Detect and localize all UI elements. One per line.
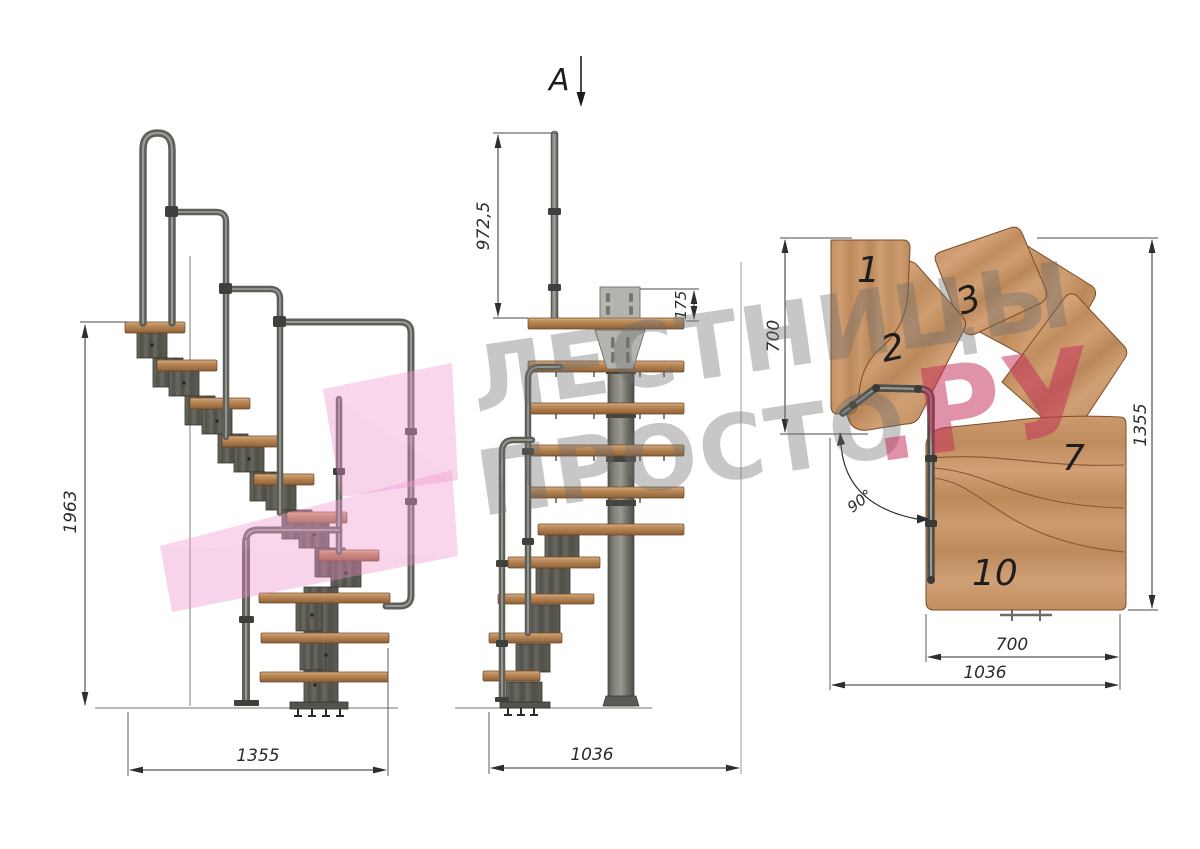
section-arrow: A (547, 56, 586, 107)
anchor-bolts (294, 709, 344, 716)
dim-front-post-height: 972,5 (474, 202, 494, 251)
staircase-drawing: 1963 1355 A (0, 0, 1200, 849)
dim-front-width: 1036 (570, 745, 613, 765)
handrail-loop (143, 133, 172, 323)
balustrade-post (551, 131, 558, 322)
tread-number-10: 10 (972, 553, 1018, 594)
dim-plan-angle: 90° (844, 486, 876, 517)
plan-support-foot (1000, 609, 1052, 621)
dim-side-width: 1355 (236, 746, 279, 766)
dim-plan-width: 1036 (963, 663, 1006, 683)
section-arrowhead-icon (577, 92, 586, 107)
front-anchor-bolts (504, 708, 538, 715)
section-label: A (547, 63, 570, 98)
dim-side-height: 1963 (61, 490, 81, 533)
dim-plan-height: 1355 (1131, 403, 1151, 446)
dim-plan-tread-width: 700 (996, 635, 1028, 655)
column-base (603, 696, 639, 706)
